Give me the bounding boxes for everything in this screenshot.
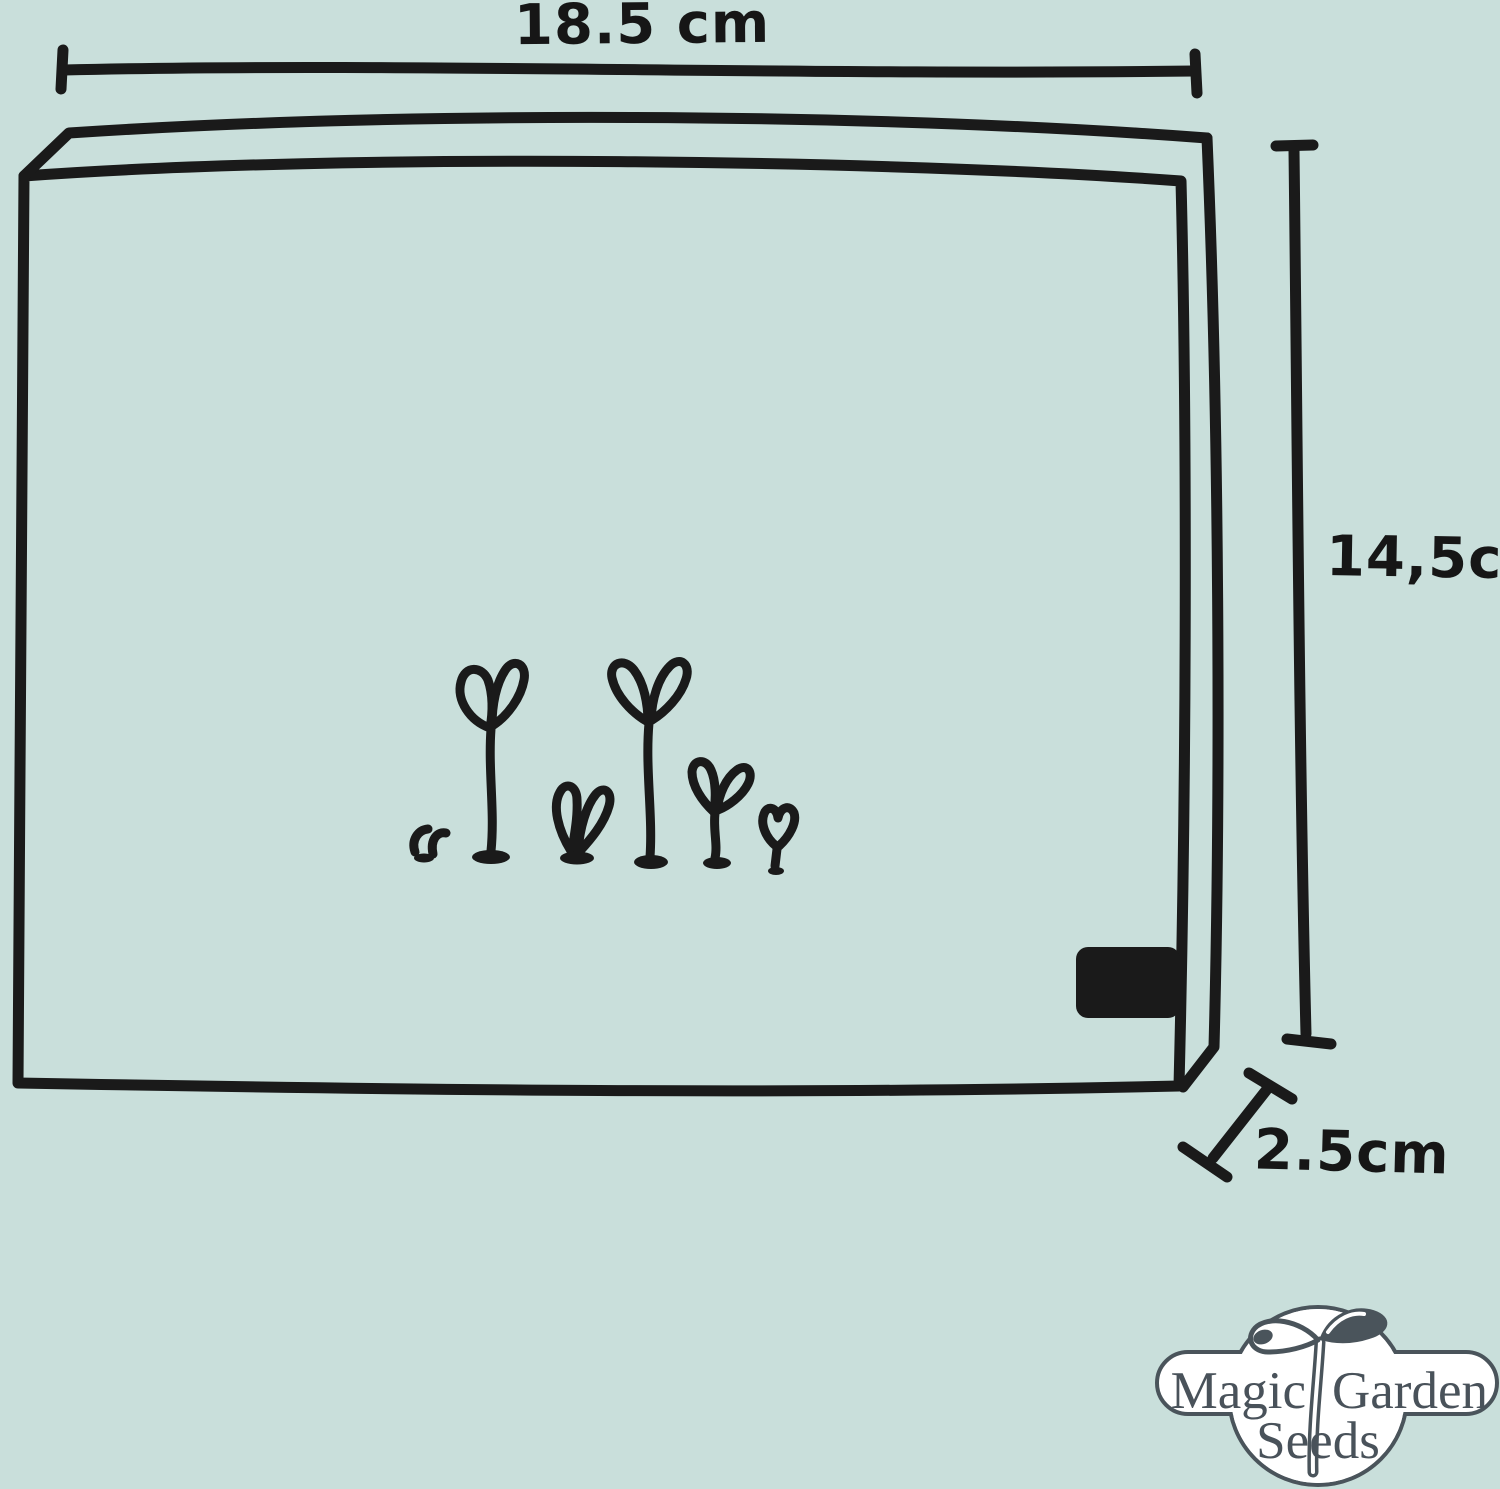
sketch-svg: Magic Garden Seeds (0, 0, 1500, 1489)
sprout-icon (414, 829, 446, 863)
height-dimension-line (1276, 145, 1331, 1044)
label-sticker (1076, 947, 1180, 1018)
height-dim-tick-bottom (1287, 1039, 1331, 1044)
depth-dimension-label: 2.5cm (1253, 1117, 1450, 1187)
width-dim-tick-right (1195, 54, 1197, 93)
brand-logo: Magic Garden Seeds (1157, 1307, 1497, 1485)
height-dimension-label: 14,5cm (1325, 524, 1500, 593)
sprout-icon (692, 762, 750, 869)
sprout-icon (460, 663, 524, 864)
seed-packet-box (18, 117, 1218, 1090)
illustration-canvas: Magic Garden Seeds 18.5 cm 14,5cm 2.5cm (0, 0, 1500, 1489)
sprout-icon (763, 808, 795, 875)
sprout-doodles (414, 662, 795, 875)
logo-word-seeds: Seeds (1256, 1412, 1380, 1470)
width-dim-line (64, 67, 1194, 72)
sprout-icon (612, 662, 688, 869)
sprout-icon (556, 786, 610, 864)
width-dimension-label: 18.5 cm (514, 0, 771, 58)
box-front-face (18, 161, 1185, 1091)
height-dim-line (1294, 150, 1306, 1034)
